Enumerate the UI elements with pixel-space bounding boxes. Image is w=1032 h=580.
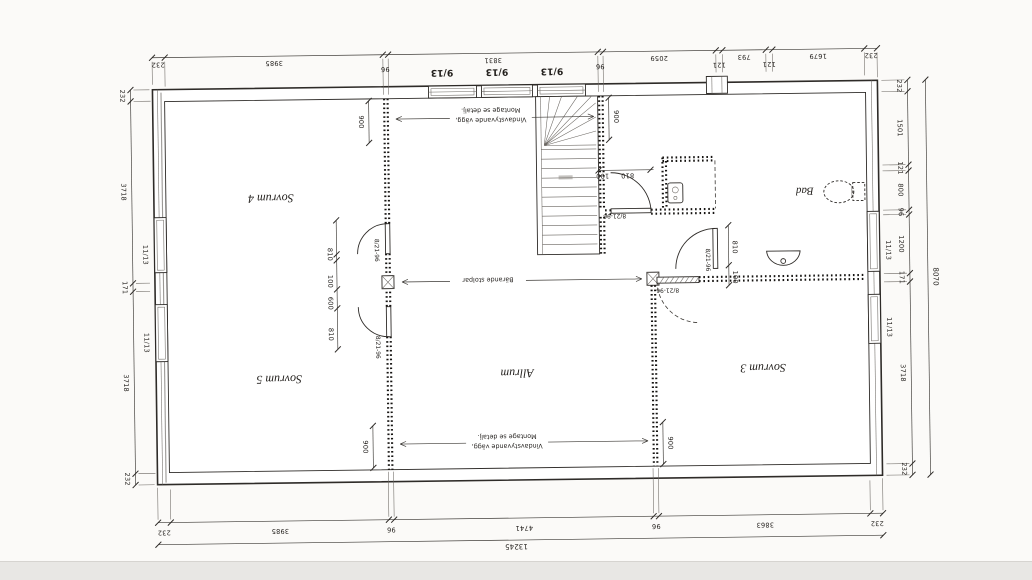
room-label-sovrum3: Sovrum 3	[740, 361, 786, 376]
dim-label: 96	[381, 65, 390, 73]
dim-total-width: 13245	[505, 542, 528, 551]
note-line: Montage se detalj.	[461, 106, 520, 115]
dim-label: 100	[596, 172, 609, 180]
stair-annotation-smudge	[559, 175, 573, 179]
room-label-sovrum4: Sovrum 4	[248, 191, 294, 206]
note-line: Montage se detalj.	[477, 432, 536, 441]
dim-label: 171	[121, 281, 129, 294]
door-label: 8/21-96	[374, 336, 380, 359]
dim-label: 232	[123, 472, 131, 485]
dim-label: 96	[596, 62, 605, 70]
dim-label: 171	[898, 271, 906, 284]
dim-label: 232	[900, 462, 908, 475]
window-label: 11/13	[142, 333, 150, 353]
dim-label: 232	[158, 529, 171, 537]
dim-label: 232	[151, 61, 164, 69]
dim-label: 793	[737, 53, 750, 61]
dim-total-height: 8070	[931, 267, 940, 286]
window-9-13-1	[428, 86, 476, 99]
top-windows: 9/13 9/13 9/13	[428, 65, 585, 98]
door-label: 8/21-96	[373, 239, 379, 262]
note-line: Vindavstyvande vägg,	[472, 442, 543, 451]
dim-label: 100	[731, 270, 739, 283]
dim-label: 96	[387, 526, 396, 534]
window-9-13-3	[537, 84, 585, 97]
door-label: 8/21-96	[704, 248, 710, 271]
exterior-walls	[152, 80, 882, 484]
door-label: 8/21-96	[656, 286, 679, 292]
floor-plan-drawing: 9/13 9/13 9/13 11/13 11/13 11/13 11/13	[0, 0, 1032, 580]
dim-label: 96	[897, 208, 905, 217]
dim-label: 232	[864, 51, 877, 59]
dim-label: 3985	[271, 527, 289, 535]
dim-label: 96	[652, 522, 661, 530]
dim-label: 2059	[650, 54, 668, 62]
window-label: 11/13	[141, 245, 149, 265]
room-label-bad: Bad	[795, 185, 813, 197]
dim-label: 121	[763, 60, 776, 68]
dim-label: 810	[731, 241, 739, 254]
dim-label: 900	[666, 436, 674, 449]
dim-chain-left: 232 3718 171 3718 232	[118, 87, 156, 488]
dim-label: 100	[326, 275, 334, 288]
room-label-allrum: Allrum	[500, 366, 535, 380]
scanned-floor-plan-page: 9/13 9/13 9/13 11/13 11/13 11/13 11/13	[0, 0, 1032, 580]
note-line: Bärande stolpar	[462, 276, 514, 285]
dim-label: 900	[361, 440, 369, 453]
window-label: 11/13	[884, 240, 892, 260]
dim-label: 1679	[809, 52, 827, 60]
window-label: 9/13	[431, 67, 454, 78]
dim-label: 1200	[897, 235, 905, 253]
dim-label: 3985	[265, 59, 283, 67]
dim-label: 3831	[484, 56, 502, 64]
door-label: 8/21-96	[603, 212, 626, 218]
dim-label: 121	[713, 61, 726, 69]
dim-label: 3718	[119, 183, 127, 201]
dim-label: 3718	[122, 374, 130, 392]
dim-label: 121	[896, 161, 904, 174]
closet-fixture	[668, 183, 683, 203]
window-label: 9/13	[486, 66, 509, 77]
dim-label: 232	[895, 79, 903, 92]
dim-label: 232	[871, 519, 884, 527]
dim-label: 810	[326, 248, 334, 261]
dim-chain-right: 232 1501 121 800 96 1200 171 3718 232 80…	[881, 76, 943, 478]
dim-label: 4741	[515, 524, 533, 532]
dim-label: 600	[326, 297, 334, 310]
scanner-edge-band	[0, 561, 1032, 580]
window-label: 11/13	[885, 317, 893, 337]
window-label: 9/13	[541, 65, 564, 76]
note-line: Vindavstyvande vägg,	[455, 116, 526, 125]
dim-label: 810	[621, 171, 634, 179]
dim-label: 232	[118, 90, 126, 103]
dim-label: 1501	[896, 119, 904, 137]
dim-label: 800	[896, 183, 904, 196]
dim-label: 900	[357, 115, 365, 128]
dim-label: 3863	[756, 521, 774, 529]
dim-label: 810	[327, 328, 335, 341]
window-9-13-2	[481, 85, 532, 98]
dim-label: 900	[612, 110, 620, 123]
staircase	[536, 96, 600, 255]
chimney-shaft	[706, 76, 727, 93]
dim-label: 3718	[899, 364, 907, 382]
room-label-sovrum5: Sovrum 5	[256, 372, 302, 387]
